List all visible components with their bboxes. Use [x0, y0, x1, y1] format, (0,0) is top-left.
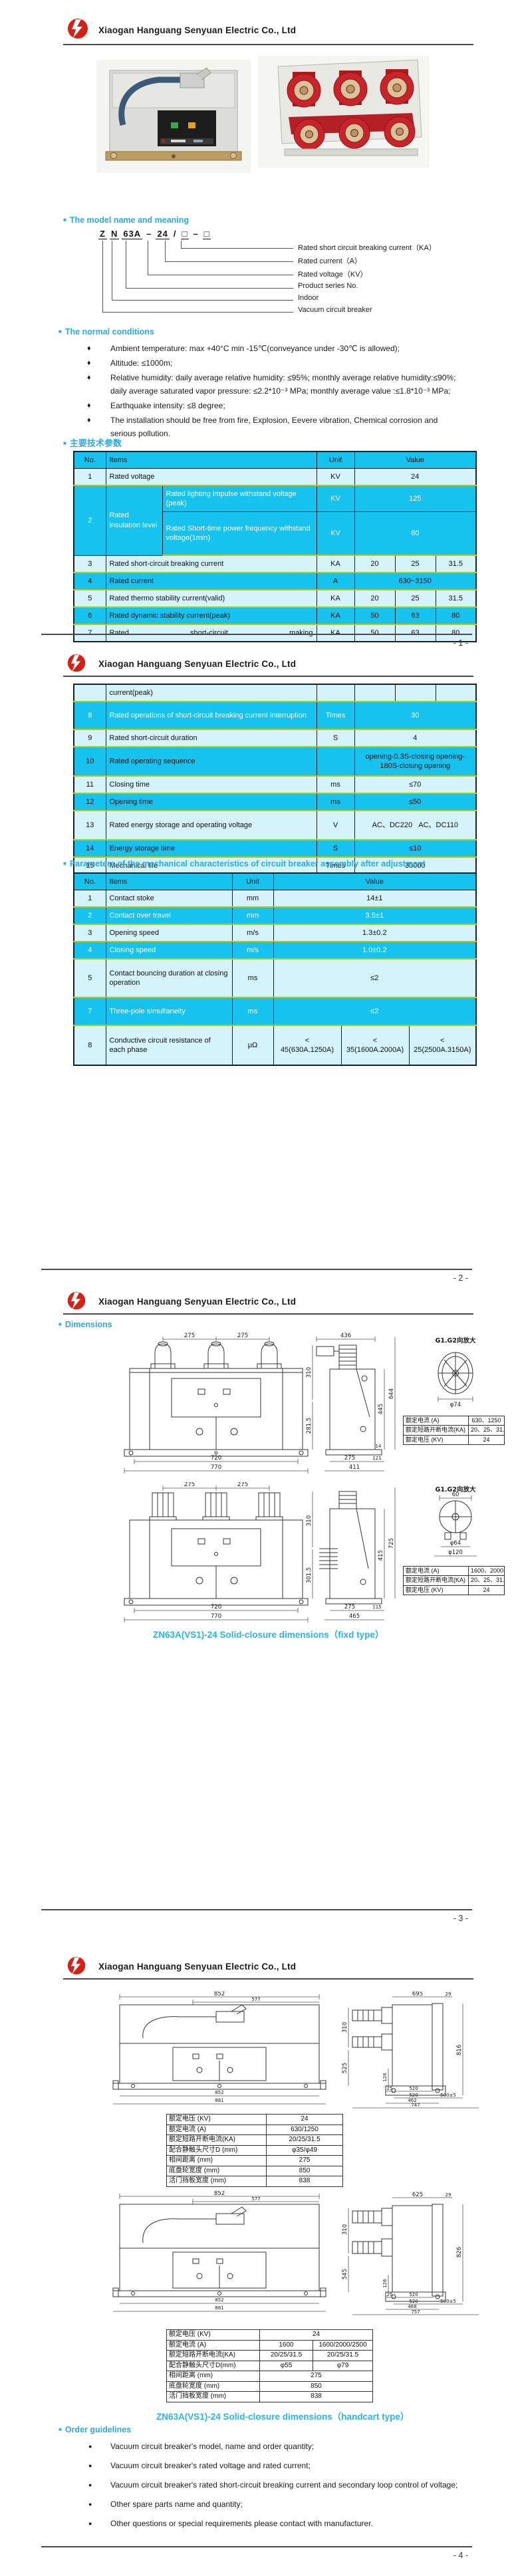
handcart-rating-table-a: 额定电压 (KV)24 额定电流 (A)630/1250 额定短路开断电流(KA… — [166, 2114, 343, 2187]
table-row: 2 Rated insulation level Rated lighting … — [74, 485, 476, 512]
list-item: ♦Ambient temperature: max +40°C min -15℃… — [85, 342, 457, 355]
front-view-art — [124, 1342, 308, 1456]
table-row: 额定短路开断电流(KA)20/25/31.520/25/31.5 — [167, 2351, 373, 2361]
dim-label: 770 — [211, 1613, 221, 1620]
dim-label: 115 — [372, 1605, 381, 1610]
page-number: - 4 - — [453, 2551, 468, 2560]
page-1: Xiaogan Hanguang Senyuan Electric Co., L… — [0, 0, 512, 652]
table-row: 3Opening speedm/s1.3±0.2 — [74, 924, 476, 942]
front-view-art — [124, 1493, 308, 1605]
table-row: 额定电压 (KV)24 — [167, 2330, 373, 2341]
dim-label: 310 — [342, 2224, 348, 2235]
model-label: Rated current（A） — [298, 255, 362, 266]
tech-params-table-continued: current(peak) 8Rated operations of short… — [73, 684, 477, 875]
dot-bullet-icon: ● — [88, 2459, 92, 2472]
dim-label: 525 — [342, 2063, 348, 2073]
table-row: 额定短路开断电流(KA)20、25、31.5 — [404, 1576, 505, 1585]
list-item: ●Vacuum circuit breaker's rated voltage … — [85, 2459, 463, 2472]
table-row: 5Contact bouncing duration at closing op… — [74, 959, 476, 997]
table-row: 12Opening timems≤50 — [74, 793, 476, 811]
dim-label: 121 — [372, 1456, 381, 1461]
page-4: Xiaogan Hanguang Senyuan Electric Co., L… — [0, 1925, 512, 2576]
dim-label: 25 — [387, 2292, 393, 2297]
dim-label: 275 — [184, 1333, 195, 1339]
dim-label: 465 — [349, 1613, 360, 1620]
dim-label: 725 — [388, 1538, 395, 1549]
header-rule — [63, 676, 473, 677]
dim-label: 577 — [251, 2196, 260, 2202]
dot-bullet-icon: ● — [88, 2498, 92, 2511]
table-row: 额定电压 (KV)24 — [404, 1585, 505, 1595]
section-bullet-icon: ■ — [63, 860, 66, 866]
dim-label: 500±5 — [440, 2299, 456, 2304]
dim-label: 126 — [382, 2073, 388, 2082]
dim-label: 881 — [215, 2305, 223, 2311]
table-row: 配合静触头尺寸D(mm)φ55φ79 — [167, 2361, 373, 2371]
front-view-art — [113, 2204, 326, 2297]
side-view-art — [352, 2003, 446, 2095]
company-logo-icon — [66, 1291, 86, 1314]
conditions-list: ♦Ambient temperature: max +40°C min -15℃… — [85, 342, 457, 442]
dim-label: φ64 — [450, 1540, 461, 1547]
dim-label: 468 — [408, 2304, 416, 2309]
dim-label: 275 — [237, 1482, 248, 1488]
section-tech-heading: ■主要技术参数 — [63, 436, 122, 449]
table-row: 相间距离 (mm)275 — [167, 2371, 373, 2382]
dim-label: 445 — [378, 1404, 384, 1414]
section-dimensions-heading: ■Dimensions — [59, 1320, 112, 1329]
dim-label: 720 — [211, 1604, 221, 1610]
table-row: 3Rated short-circuit breaking currentKA2… — [74, 555, 476, 573]
dim-label: 275 — [237, 1333, 248, 1339]
dot-bullet-icon: ● — [88, 2478, 92, 2492]
dim-label: 310 — [306, 1515, 313, 1526]
dimension-drawing-fixed-b: 275 275 720 770 310 301.5 415 725 275 11… — [93, 1482, 505, 1626]
dim-label: 275 — [344, 1604, 355, 1610]
mech-params-table: No.ItemsUnitValue 1Contact stokemm14±1 2… — [73, 872, 477, 1066]
table-row: 额定电流 (A)16001600/2000/2500 — [167, 2340, 373, 2351]
company-logo-icon — [66, 653, 86, 676]
model-label: Product series No. — [298, 282, 358, 290]
table-row: 5Rated thermo stability current(valid)KA… — [74, 590, 476, 607]
dim-label: 852 — [214, 1992, 225, 1997]
dim-label: 826 — [456, 2247, 463, 2257]
product-photo-right — [258, 56, 430, 171]
dimension-drawing-handcart-a: 852 577 852 881 695 29 310 525 126 816 2… — [93, 1992, 505, 2110]
table-row: 配合静触头尺寸D (mm)φ35/φ49 — [167, 2145, 343, 2156]
detail-title: G1.G2向放大 — [436, 1337, 476, 1345]
dimension-lines — [113, 1994, 479, 2108]
dim-label: 747 — [411, 2103, 420, 2108]
list-item: ●Other spare parts name and quantity; — [85, 2498, 463, 2511]
dim-label: 29 — [446, 1992, 451, 1997]
dim-label: 436 — [340, 1333, 351, 1339]
dim-label: 520 — [409, 2093, 418, 2098]
dim-label: 881 — [215, 2098, 223, 2103]
dim-label: 411 — [349, 1464, 360, 1471]
table-row: 8Rated operations of short-circuit break… — [74, 702, 476, 729]
dimension-lines — [124, 1485, 477, 1622]
dim-label: 545 — [342, 2269, 348, 2279]
table-row: 11Closing timems≤70 — [74, 776, 476, 793]
diamond-bullet-icon: ♦ — [87, 356, 91, 370]
table-row: 1Contact stokemm14±1 — [74, 890, 476, 908]
section-bullet-icon: ■ — [59, 328, 62, 334]
list-item: ♦Earthquake intensity: ≤8 degree; — [85, 399, 457, 412]
company-name: Xiaogan Hanguang Senyuan Electric Co., L… — [98, 25, 296, 35]
list-item: ♦Altitude: ≤1000m; — [85, 356, 457, 370]
front-view-art — [113, 2005, 326, 2089]
dim-label: 520 — [409, 2292, 418, 2297]
detail-view-art — [438, 1352, 473, 1394]
dim-label: 577 — [251, 1997, 260, 2002]
dim-label: 310 — [306, 1367, 313, 1378]
list-item: ●Vacuum circuit breaker's rated short-ci… — [85, 2478, 463, 2492]
table-row: 底盘轮宽度 (mm)850 — [167, 2381, 373, 2392]
table-row: 4Rated currentA630~3150 — [74, 573, 476, 590]
model-label: Indoor — [298, 294, 319, 302]
section-bullet-icon: ■ — [59, 1321, 62, 1327]
table-row: 额定电压 (KV)24 — [167, 2115, 343, 2125]
dim-label: 29 — [446, 2192, 451, 2198]
side-view-art — [319, 1491, 382, 1604]
model-label: Rated short circuit breaking current（KA） — [298, 242, 436, 253]
dim-label: 14 — [376, 1444, 382, 1449]
model-label: Rated voltage（KV） — [298, 269, 368, 279]
handcart-rating-table-b: 额定电压 (KV)24 额定电流 (A)16001600/2000/2500 额… — [166, 2329, 373, 2402]
dim-label: 310 — [342, 2022, 348, 2033]
page-number: - 3 - — [453, 1914, 468, 1923]
dim-label: 520 — [409, 2086, 418, 2091]
dim-label: 500±5 — [440, 2093, 456, 2098]
section-mech-heading: ■Parameters of the mechanical characteri… — [63, 859, 426, 868]
list-item: ●Vacuum circuit breaker's model, name an… — [85, 2440, 463, 2453]
dim-label: 60 — [452, 1491, 459, 1498]
table-row: 13Rated energy storage and operating vol… — [74, 811, 476, 840]
footer-rule — [41, 1269, 472, 1270]
header-rule — [63, 1313, 473, 1315]
dim-label: φ74 — [450, 1402, 461, 1408]
dim-label: 852 — [215, 2297, 223, 2303]
list-item: ●Other questions or special requirements… — [85, 2517, 463, 2530]
dim-label: 644 — [388, 1388, 395, 1399]
drawing-rating-table-b: 额定电流 (A)1600、2000、2500 额定短路开断电流(KA)20、25… — [403, 1566, 505, 1595]
dim-label: 25 — [387, 2086, 393, 2091]
diamond-bullet-icon: ♦ — [87, 399, 91, 412]
table-row: 额定电流 (A)1600、2000、2500 — [404, 1567, 505, 1576]
table-row: 活门挡板宽度 (mm)838 — [167, 2176, 343, 2187]
table-row: 4Closing speedm/s1.0±0.2 — [74, 942, 476, 959]
table-row: 9Rated short-circuit durationS4 — [74, 729, 476, 747]
dim-label: 126 — [382, 2279, 388, 2288]
dimension-lines — [124, 1337, 473, 1474]
list-item: ♦Relative humidity: daily average relati… — [85, 371, 457, 398]
section-model-heading: ■The model name and meaning — [63, 215, 189, 225]
drawing-caption-fixed: ZN63A(VS1)-24 Solid-closure dimensions（f… — [153, 1627, 384, 1640]
table-row: 额定电压 (KV)24 — [404, 1435, 505, 1444]
dim-label: 757 — [411, 2309, 420, 2315]
company-logo-icon — [66, 1956, 86, 1979]
diamond-bullet-icon: ♦ — [87, 414, 91, 427]
table-row: 14Energy storage timeS≤10 — [74, 840, 476, 857]
dim-label: 275 — [344, 1455, 355, 1462]
table-row: 额定电流 (A)630/1250 — [167, 2125, 343, 2135]
dimension-drawing-handcart-b: 852 577 852 881 625 29 310 545 126 826 2… — [93, 2191, 505, 2324]
section-bullet-icon: ■ — [59, 2426, 62, 2432]
table-row: 额定短路开断电流(KA)20、25、31.5 — [404, 1426, 505, 1435]
model-line — [102, 241, 293, 313]
detail-view-art — [440, 1501, 471, 1539]
page-number: - 2 - — [453, 1273, 468, 1283]
list-item: ♦The installation should be free from fi… — [85, 414, 457, 440]
table-header-row: No.ItemsUnitValue — [74, 873, 476, 890]
dim-label: 625 — [412, 2192, 423, 2198]
drawing-caption-handcart: ZN63A(VS1)-24 Solid-closure dimensions（h… — [156, 2409, 409, 2422]
table-row: 额定电流 (A)630、1250 — [404, 1416, 505, 1426]
section-order-heading: ■Order guidelines — [59, 2425, 131, 2434]
dim-label: 816 — [456, 2045, 463, 2055]
header-rule — [63, 1978, 473, 1980]
table-row: 2Contact over travelmm3.5±1 — [74, 907, 476, 924]
dim-label: 720 — [211, 1455, 221, 1462]
table-row: 7Three-pole simultaneityms≤2 — [74, 997, 476, 1025]
side-view-art — [352, 2204, 446, 2301]
diamond-bullet-icon: ♦ — [87, 342, 91, 355]
table-row: 8Conductive circuit resistance of each p… — [74, 1025, 476, 1065]
diamond-bullet-icon: ♦ — [87, 371, 91, 384]
drawing-rating-table-a: 额定电流 (A)630、1250 额定短路开断电流(KA)20、25、31.5 … — [403, 1416, 505, 1445]
dim-label: 852 — [215, 2090, 223, 2095]
page-3: Xiaogan Hanguang Senyuan Electric Co., L… — [0, 1287, 512, 1925]
table-header-row: No. Items Unit Value — [74, 451, 476, 469]
table-row: current(peak) — [74, 684, 476, 702]
dim-label: 301.5 — [306, 1567, 313, 1583]
dim-label: 852 — [214, 2191, 225, 2197]
dim-label: 520 — [409, 2299, 418, 2304]
dot-bullet-icon: ● — [88, 2517, 92, 2530]
dim-label: 770 — [211, 1464, 221, 1471]
model-code: ZN63A–24/□–□ — [98, 229, 213, 239]
section-conditions-heading: ■The normal conditions — [59, 327, 154, 336]
dim-label: 281.5 — [306, 1418, 313, 1434]
company-name: Xiaogan Hanguang Senyuan Electric Co., L… — [98, 1962, 296, 1972]
model-label: Vacuum circuit breaker — [298, 306, 372, 314]
company-logo-icon — [66, 17, 89, 43]
page-2: Xiaogan Hanguang Senyuan Electric Co., L… — [0, 652, 512, 1287]
side-view-art — [317, 1345, 382, 1455]
page-number: - 1 - — [453, 638, 468, 648]
table-row: 底盘轮宽度 (mm)850 — [167, 2166, 343, 2176]
footer-rule — [41, 2546, 472, 2547]
table-row: 相间距离 (mm)275 — [167, 2156, 343, 2166]
header-rule — [63, 44, 473, 45]
footer-rule — [41, 634, 472, 635]
table-row: 额定短路开断电流(KA)20/25/31.5 — [167, 2135, 343, 2146]
table-row: 7Rated short-circuit makingKA506380 — [74, 624, 476, 642]
company-name: Xiaogan Hanguang Senyuan Electric Co., L… — [98, 659, 296, 669]
product-photo-left — [96, 60, 251, 176]
dim-label: 275 — [184, 1482, 195, 1488]
table-row: 1Rated voltageKV24 — [74, 469, 476, 486]
company-name: Xiaogan Hanguang Senyuan Electric Co., L… — [98, 1297, 296, 1307]
order-list: ●Vacuum circuit breaker's model, name an… — [85, 2440, 463, 2531]
tech-params-table: No. Items Unit Value 1Rated voltageKV24 … — [73, 451, 477, 642]
section-bullet-icon: ■ — [63, 440, 66, 446]
dim-label: 695 — [412, 1992, 423, 1997]
footer-rule — [41, 1909, 472, 1910]
dim-label: φ120 — [448, 1549, 463, 1556]
table-row: 10Rated operating sequenceopening-0.3S-c… — [74, 747, 476, 776]
dim-label: 415 — [378, 1550, 384, 1561]
table-row: 活门挡板宽度 (mm)838 — [167, 2392, 373, 2402]
dimension-drawing-fixed-a: 275 275 720 770 436 310 281.5 445 644 14… — [93, 1331, 505, 1481]
section-bullet-icon: ■ — [63, 217, 66, 223]
table-row: 6Rated dynamic stability current(peak)KA… — [74, 607, 476, 624]
dot-bullet-icon: ● — [88, 2440, 92, 2453]
